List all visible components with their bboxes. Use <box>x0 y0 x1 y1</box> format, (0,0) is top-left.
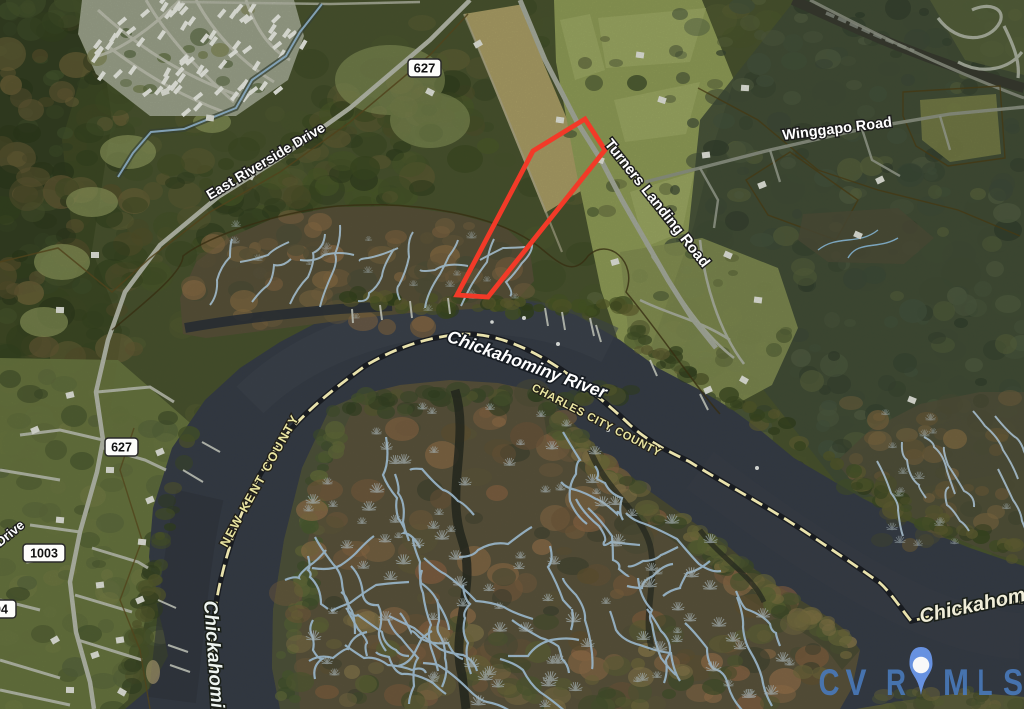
svg-text:C: C <box>819 662 840 703</box>
svg-text:04: 04 <box>0 603 8 617</box>
svg-text:627: 627 <box>414 61 436 76</box>
svg-text:M: M <box>943 662 969 703</box>
svg-text:S: S <box>1003 662 1023 703</box>
svg-text:1003: 1003 <box>30 547 58 561</box>
svg-text:R: R <box>886 662 906 703</box>
svg-text:627: 627 <box>111 441 132 455</box>
svg-text:V: V <box>846 662 867 703</box>
svg-text:L: L <box>978 662 993 703</box>
